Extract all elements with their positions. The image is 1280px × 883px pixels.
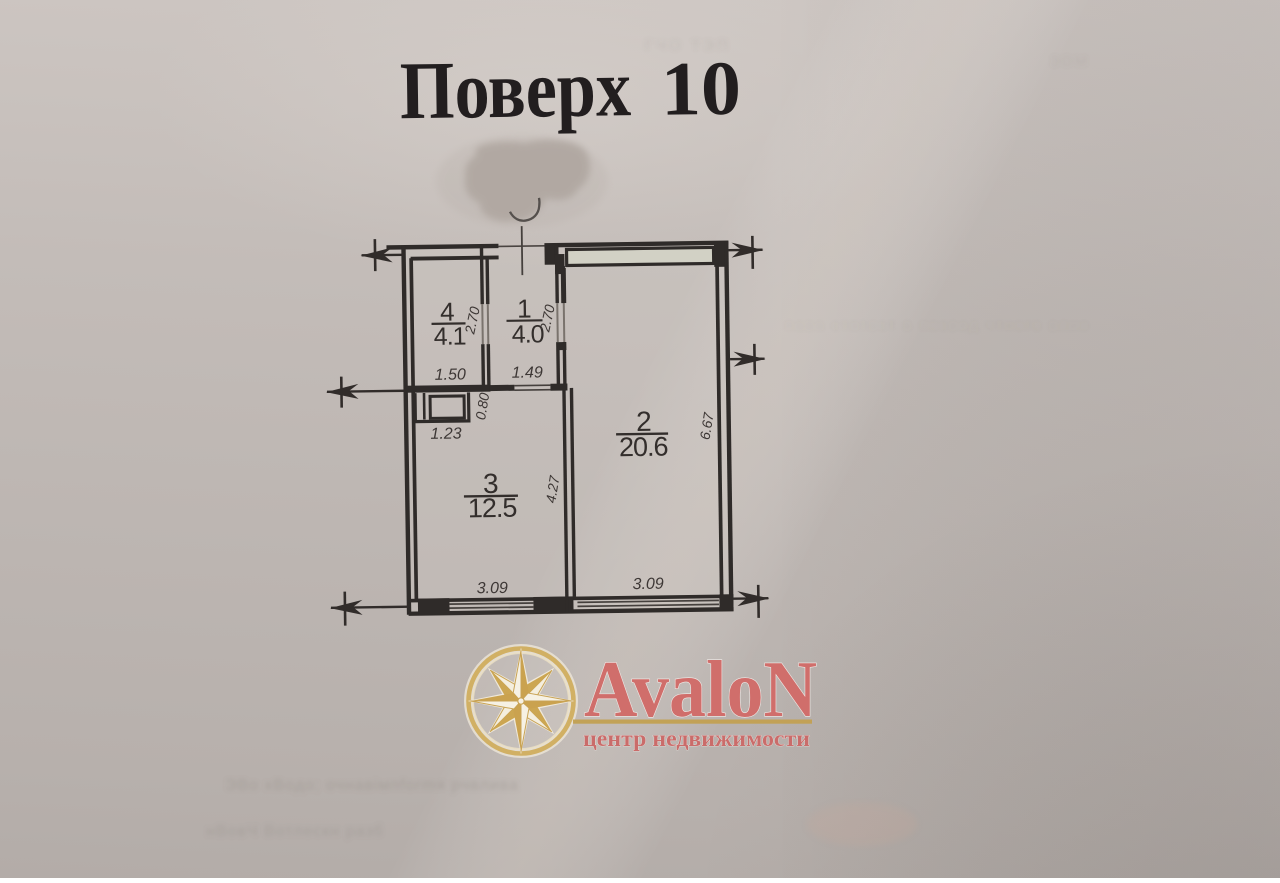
svg-text:1.50: 1.50 [435,366,466,383]
svg-text:1: 1 [517,293,532,323]
svg-text:3.09: 3.09 [477,580,508,597]
svg-text:ЗОМ: ЗОМ [1050,53,1089,70]
svg-text:нВовЧ Вотлескн разб: нВовЧ Вотлескн разб [206,823,384,840]
svg-text:20.6: 20.6 [619,432,668,463]
svg-text:центр недвижимости: центр недвижимости [583,726,810,751]
svg-text:1.23: 1.23 [430,425,461,442]
svg-text:4.1: 4.1 [434,322,466,350]
svg-text:Поверх: Поверх [399,42,631,136]
svg-text:12.5: 12.5 [468,493,517,524]
svg-text:ГЧО ТЭП: ГЧО ТЭП [645,37,731,54]
svg-text:1.49: 1.49 [512,364,543,381]
svg-text:ЭВо хВодо; очнавімпformя рчвли: ЭВо хВодо; очнавімпformя рчвлива [225,777,519,794]
svg-text:AvaloN: AvaloN [584,646,817,734]
svg-text:3.09: 3.09 [633,576,664,593]
svg-text:10: 10 [660,45,741,132]
svg-text:пава статвст в посвед чтного: пава статвст в посвед чтного влио [785,317,1090,334]
